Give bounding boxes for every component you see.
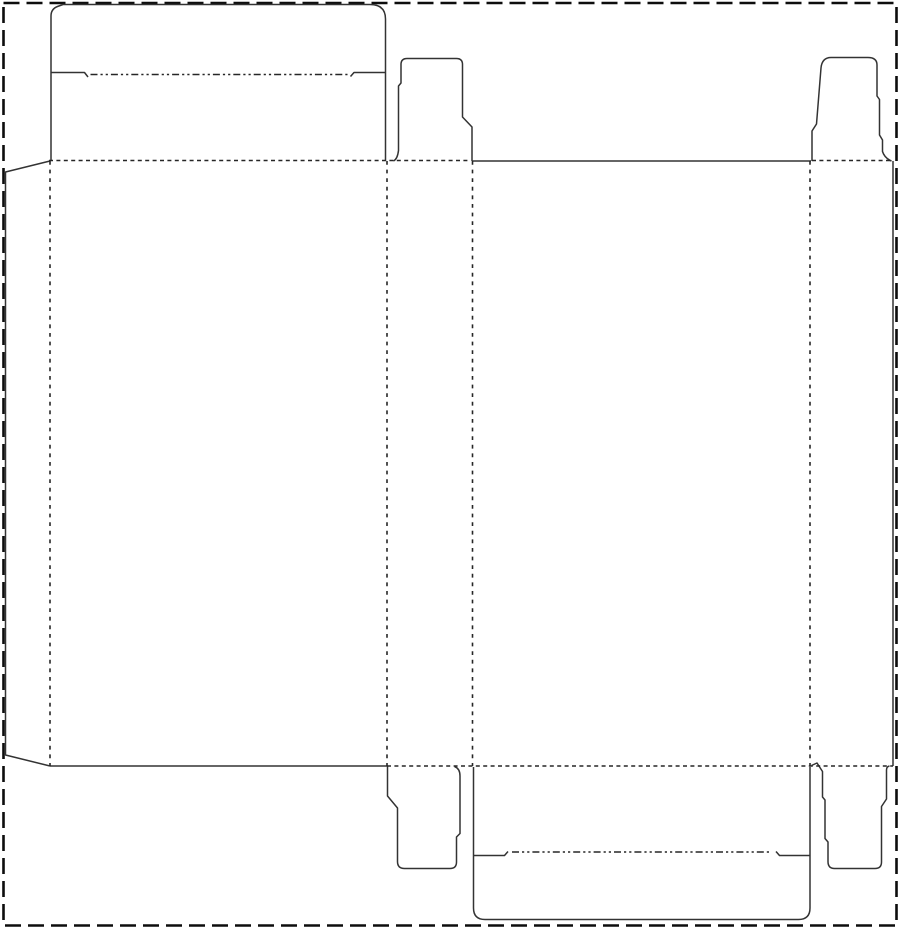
- glue-flap-edge: [6, 161, 51, 766]
- tuck-lid-shoulder-right: [351, 73, 386, 77]
- bottom-tuck-flap-outline: [474, 767, 811, 920]
- bottom-dust-flap-right: [812, 763, 890, 869]
- bottom-flap-shoulder-left: [474, 852, 508, 856]
- bottom-flap-shoulder-right: [776, 852, 810, 856]
- top-dust-flap-right: [812, 58, 892, 162]
- bottom-dust-flap-left: [388, 767, 461, 869]
- dieline-sheet: [0, 0, 900, 929]
- tuck-lid-shoulder-left: [51, 73, 88, 78]
- tuck-lid-outline: [51, 5, 386, 162]
- dieline-drawing: [0, 0, 900, 929]
- sheet-border: [4, 3, 897, 926]
- top-dust-flap-left: [394, 59, 473, 162]
